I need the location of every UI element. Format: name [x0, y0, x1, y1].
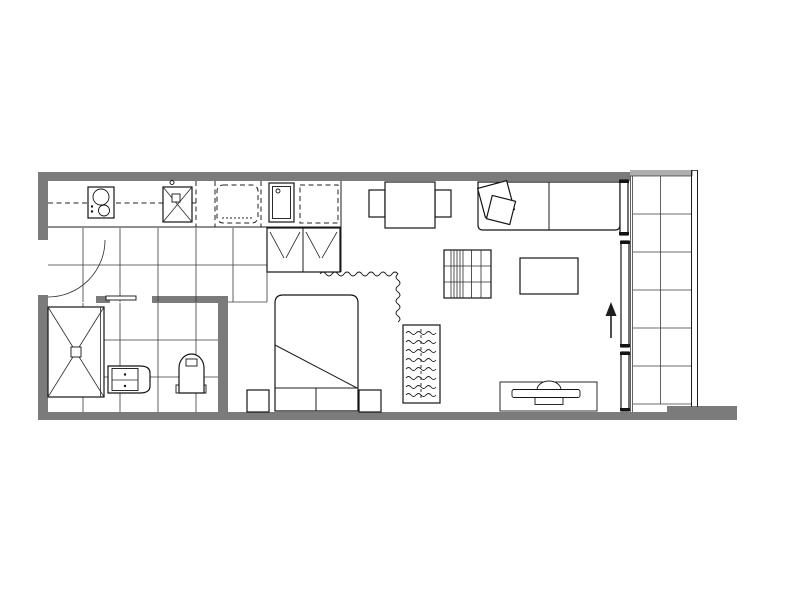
- drawer-handle: [124, 385, 126, 387]
- kitchen-tiled-floor: [48, 228, 267, 302]
- cooktop-icon: [88, 187, 114, 218]
- entry-door: [48, 240, 105, 297]
- tv-unit-icon: [500, 381, 597, 411]
- balcony: [630, 170, 698, 412]
- wall-bottom: [38, 412, 668, 420]
- dining-chair-left: [369, 190, 385, 217]
- bed-icon: [275, 295, 358, 411]
- vanity-icon: [108, 366, 150, 393]
- drawer-handle: [124, 373, 126, 375]
- bedside-table-right: [359, 390, 381, 412]
- bathroom-door-leaf: [106, 296, 136, 300]
- door-panel-3: [621, 352, 629, 411]
- refrigerator-space-icon: [217, 185, 258, 223]
- laundry-tub-icon: [269, 183, 294, 222]
- tv-screen: [512, 390, 580, 398]
- shelf-unit-icon: [444, 250, 491, 298]
- tap: [170, 181, 174, 185]
- wall-bath-top: [152, 296, 228, 303]
- sink-basin: [172, 194, 180, 202]
- door-panel-2: [621, 241, 629, 347]
- wall-top: [38, 172, 630, 181]
- cupboard-icon: [267, 228, 340, 272]
- tap: [276, 189, 280, 193]
- dining-table: [385, 182, 435, 228]
- shower-drain: [71, 347, 81, 357]
- wall-bottom-right-block: [667, 406, 737, 420]
- bedside-table-left: [247, 390, 269, 412]
- sofa-cushion-2: [486, 195, 515, 224]
- burner-large: [93, 189, 109, 205]
- dining-chair-right: [435, 190, 451, 217]
- balustrade-icon: [692, 170, 698, 407]
- balcony-tiled-floor: [630, 176, 691, 412]
- tv-base: [535, 398, 563, 405]
- entry-door-arc-icon: [48, 240, 105, 297]
- sofa-icon: [478, 181, 620, 230]
- toilet-icon: [176, 354, 206, 393]
- wall-top-balcony: [630, 170, 693, 176]
- shower-icon: [48, 307, 104, 397]
- floor-plan-svg: [0, 0, 800, 600]
- wall-left-lower: [38, 295, 48, 420]
- door-panel-1: [620, 180, 628, 235]
- wall-bath-bedroom: [218, 296, 228, 412]
- knob: [91, 210, 93, 212]
- knob: [91, 205, 93, 207]
- dining-set: [369, 182, 451, 228]
- sliding-door-icon: [619, 180, 630, 411]
- toilet-flush: [186, 359, 197, 366]
- entry-arrow-icon: [606, 302, 617, 338]
- floor-plan-image: [0, 0, 800, 600]
- appliance-space-icon: [300, 185, 338, 223]
- vanity-cabinet: [112, 369, 138, 391]
- wall-left-upper: [38, 181, 48, 240]
- burner-small: [99, 205, 110, 216]
- kitchen-sink-icon: [163, 181, 192, 223]
- coffee-table: [520, 258, 578, 294]
- wardrobe-icon: [403, 325, 440, 403]
